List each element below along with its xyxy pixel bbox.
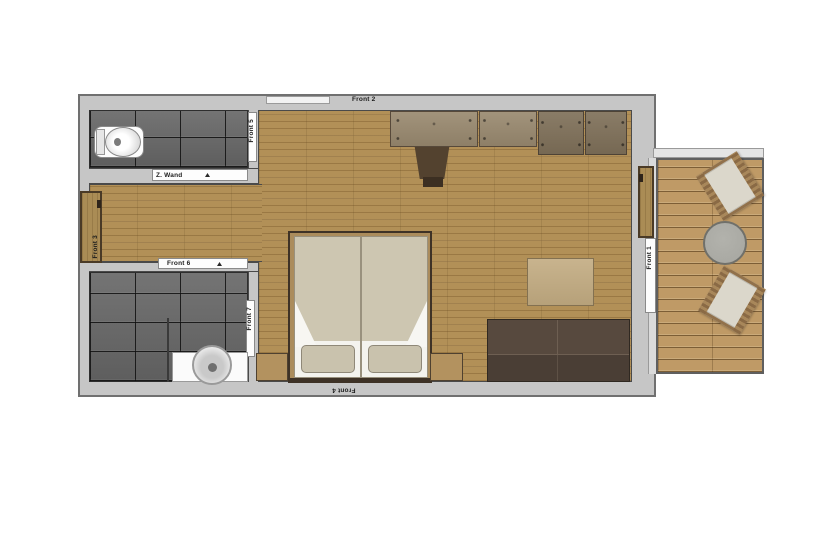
mattress-left — [294, 236, 361, 378]
balcony-edge — [653, 148, 764, 158]
toilet-door-threshold: Z. Wand — [152, 169, 248, 181]
pillow-right — [368, 345, 422, 373]
mattress-right — [361, 236, 428, 378]
toilet-door-label: Z. Wand — [156, 173, 182, 180]
tick-mark — [205, 173, 210, 177]
toilet-side-door-strip: Front 5 — [248, 112, 257, 162]
balcony-door-label: Front 1 — [647, 246, 654, 269]
sideboard-shade — [488, 355, 629, 381]
floor-plan: Z. Wand Front 6 Front 5 Front 7 Front 3 — [0, 0, 820, 560]
nightstand-right — [430, 353, 463, 381]
cabinet-panel — [538, 111, 584, 155]
nightstand-left — [256, 353, 288, 381]
washbasin-drain — [208, 363, 217, 372]
desk-chair — [414, 147, 450, 179]
balcony-table — [703, 221, 747, 265]
toilet-bowl — [105, 127, 141, 157]
pillow-left — [301, 345, 355, 373]
tick-mark — [217, 262, 222, 266]
shower-side-door-strip: Front 7 — [246, 300, 255, 357]
balcony-door — [638, 166, 654, 238]
top-wall-label: Front 2 — [352, 97, 375, 104]
cabinet-panel — [585, 111, 627, 155]
corridor-floor — [89, 184, 262, 262]
shower-door-label: Front 6 — [167, 261, 190, 268]
door-handle — [97, 200, 101, 208]
wardrobe-panel — [479, 111, 537, 147]
toilet-drain — [114, 138, 121, 146]
shower-door-threshold: Front 6 — [158, 258, 248, 269]
desk-chair-back — [423, 177, 443, 187]
door-handle — [639, 174, 643, 182]
toilet-side-door-label: Front 5 — [249, 119, 256, 142]
wardrobe-panel — [390, 111, 478, 147]
entry-door: Front 3 — [80, 191, 102, 263]
balcony-door-threshold: Front 1 — [645, 238, 656, 313]
bottom-wall-label: Front 4 — [332, 386, 355, 393]
toilet-cistern — [96, 129, 105, 155]
shower-side-door-label: Front 7 — [247, 307, 254, 330]
double-bed — [288, 231, 432, 383]
sideboard — [487, 319, 630, 382]
entry-door-label: Front 3 — [93, 235, 100, 258]
rug — [527, 258, 594, 306]
shower-partition — [167, 318, 169, 382]
window — [266, 96, 330, 104]
